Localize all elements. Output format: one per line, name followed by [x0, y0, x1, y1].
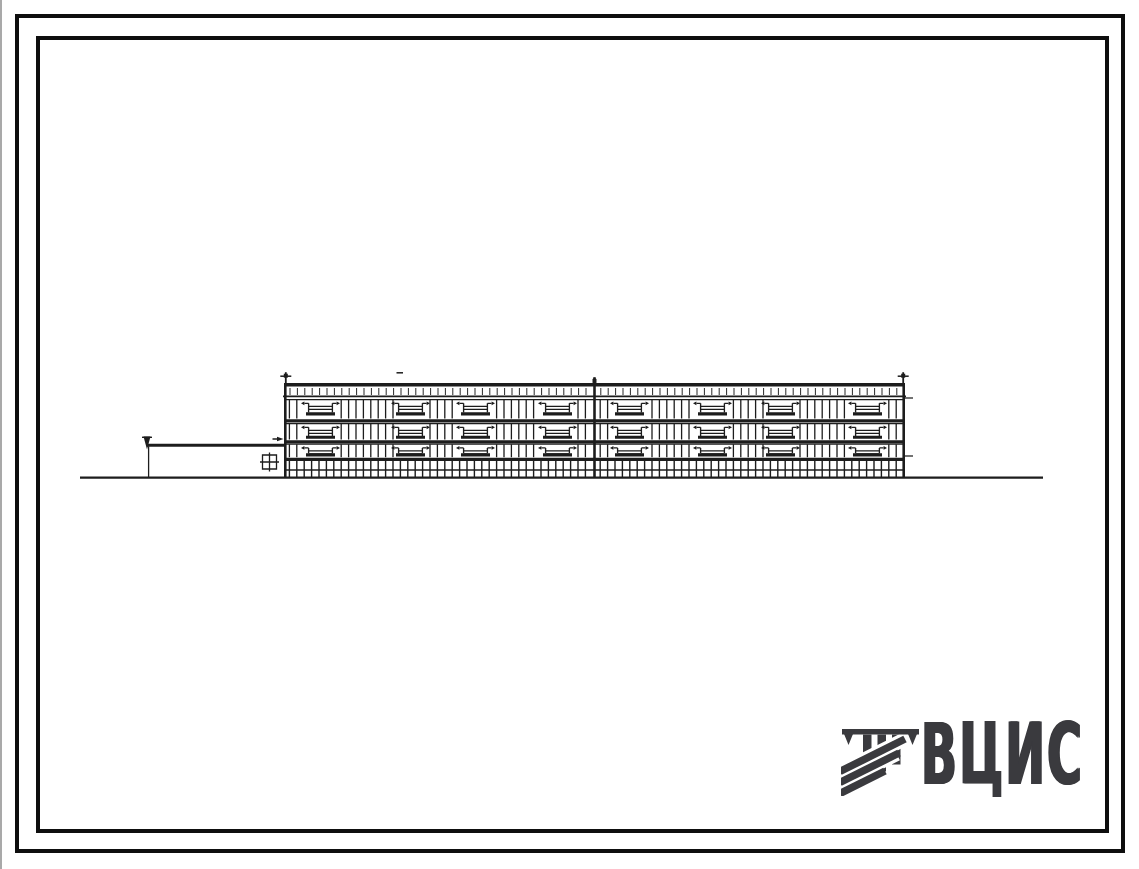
annex-structure [142, 437, 286, 478]
dimension-ticks [273, 398, 914, 456]
building-structure [283, 373, 906, 478]
axis-markers [280, 372, 908, 385]
vcis-logo-icon [841, 728, 920, 796]
vcis-logo-text: ВЦИС [921, 711, 1084, 797]
vcis-logo: ВЦИС [841, 726, 1086, 812]
